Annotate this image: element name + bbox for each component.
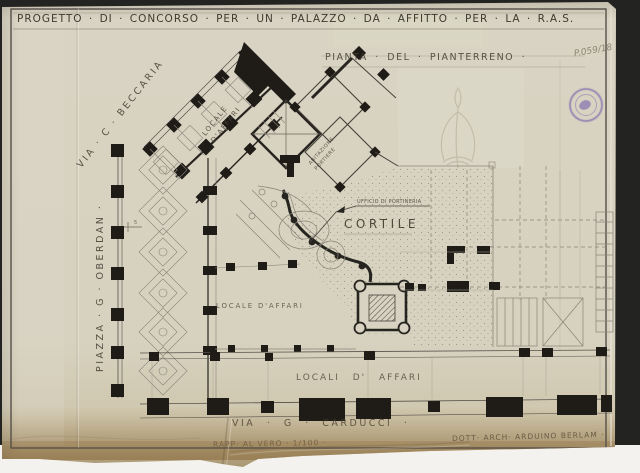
ink-stamp	[570, 89, 602, 121]
dimension-tick	[124, 222, 142, 232]
sheet-title: PROGETTO · DI · CONCORSO · PER · UN · PA…	[17, 14, 574, 26]
dimension-label: 5	[134, 221, 137, 227]
street-label-carducci: VIA · G · CARDUCCI ·	[232, 419, 409, 429]
drawing-sheet: PROGETTO · DI · CONCORSO · PER · UN · PA…	[0, 0, 640, 473]
courtyard-pavilion	[355, 281, 410, 334]
shop-left-label: LOCALE D'AFFARI	[216, 303, 304, 311]
street-label-oberdan: PIAZZA · G · OBERDAN ·	[96, 204, 106, 372]
courtyard-label: CORTILE	[344, 218, 419, 231]
courtyard-south-wall	[215, 345, 356, 352]
sheet-subtitle: PIANTA · DEL · PIANTERRENO ·	[325, 53, 526, 63]
porter-office-label: UFFICIO DI PORTINERIA	[357, 200, 421, 206]
scanned-drawing: PROGETTO · DI · CONCORSO · PER · UN · PA…	[0, 0, 640, 473]
left-wing	[111, 144, 300, 400]
shops-bottom-label: LOCALI D' AFFARI	[296, 374, 422, 384]
